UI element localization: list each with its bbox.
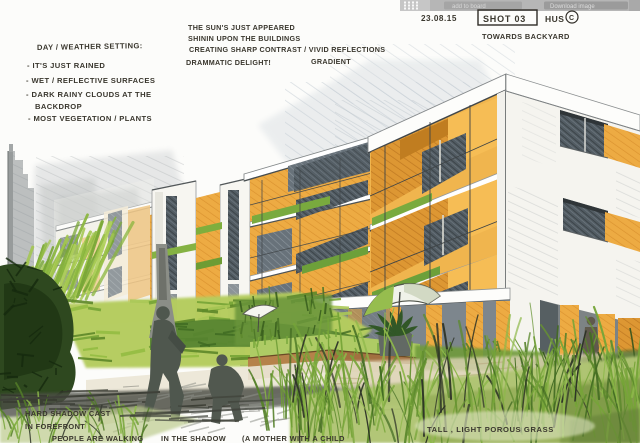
svg-text:23.08.15: 23.08.15 [421,14,457,23]
svg-text:- IT'S JUST RAINED: - IT'S JUST RAINED [27,61,105,70]
svg-text:THE SUN'S JUST APPEARED: THE SUN'S JUST APPEARED [188,23,295,32]
svg-text:IN THE SHADOW: IN THE SHADOW [161,434,226,443]
svg-text:IN FOREFRONT: IN FOREFRONT [25,422,85,431]
svg-text:C: C [569,15,574,22]
svg-text:TOWARDS BACKYARD: TOWARDS BACKYARD [482,32,570,41]
svg-text:- WET / REFLECTIVE SURFACES: - WET / REFLECTIVE SURFACES [26,76,155,85]
svg-text:(A MOTHER WITH A CHILD: (A MOTHER WITH A CHILD [242,434,345,443]
svg-text:HARD SHADOW CAST: HARD SHADOW CAST [25,409,111,418]
svg-text:add to board: add to board [452,4,486,10]
svg-text:DAY / WEATHER SETTING:: DAY / WEATHER SETTING: [37,41,143,52]
svg-text:Download image: Download image [550,4,595,10]
svg-text:CREATING SHARP CONTRAST / VIVI: CREATING SHARP CONTRAST / VIVID REFLECTI… [189,45,385,54]
svg-text:- MOST VEGETATION / PLANTS: - MOST VEGETATION / PLANTS [28,114,152,123]
svg-text:SHININ UPON THE BUILDINGS: SHININ UPON THE BUILDINGS [188,34,301,43]
svg-text:HUS: HUS [545,14,564,24]
svg-text:SHOT 03: SHOT 03 [483,14,526,24]
svg-text:GRADIENT: GRADIENT [311,57,351,66]
svg-text:- DARK RAINY CLOUDS AT THE: - DARK RAINY CLOUDS AT THE [26,90,151,99]
svg-text:PEOPLE ARE WALKING: PEOPLE ARE WALKING [52,434,144,443]
svg-text:TALL , LIGHT POROUS GRASS: TALL , LIGHT POROUS GRASS [427,425,554,434]
svg-text:DRAMMATIC DELIGHT!: DRAMMATIC DELIGHT! [186,58,271,67]
svg-text:BACKDROP: BACKDROP [35,102,82,111]
